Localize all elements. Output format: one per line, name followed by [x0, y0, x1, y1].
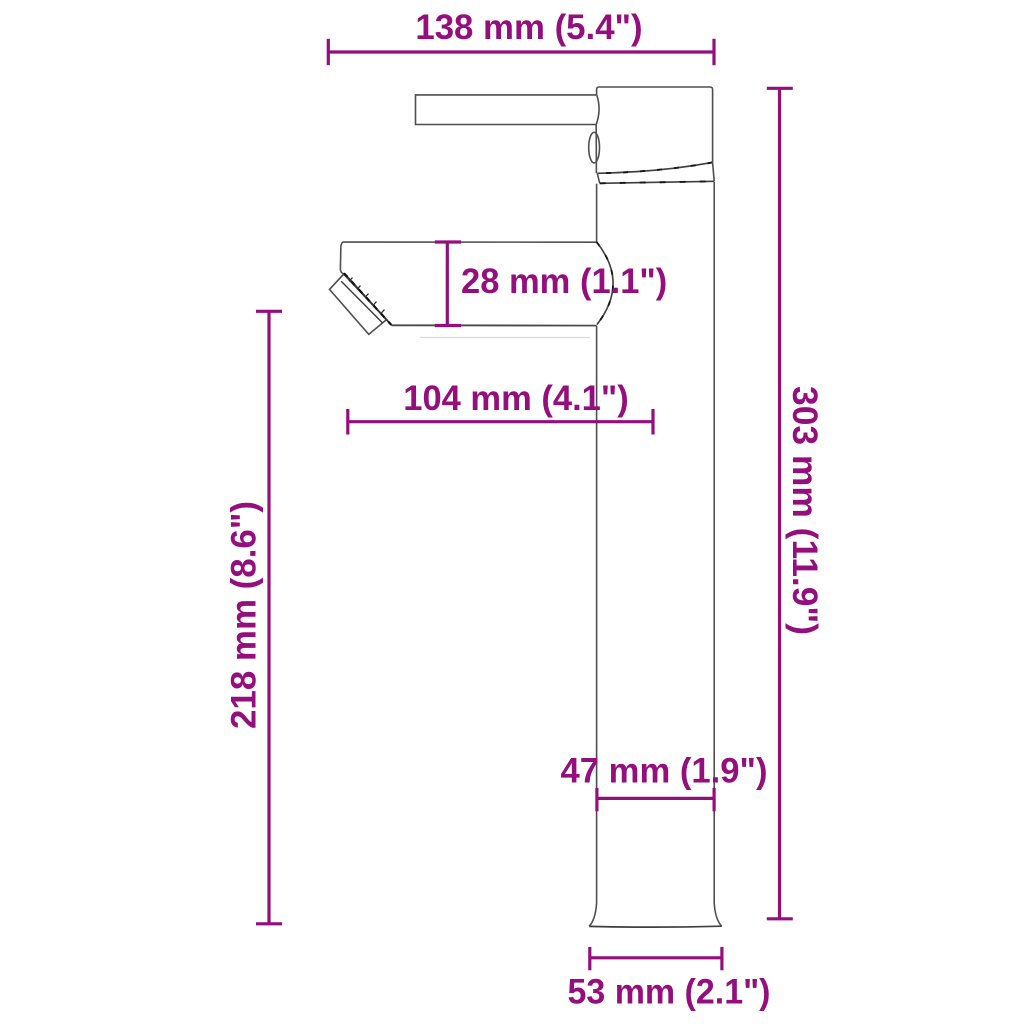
svg-text:138 mm (5.4"): 138 mm (5.4"): [415, 8, 642, 47]
svg-text:303 mm (11.9"): 303 mm (11.9"): [785, 386, 824, 635]
svg-text:28 mm (1.1"): 28 mm (1.1"): [461, 262, 667, 301]
svg-text:53 mm (2.1"): 53 mm (2.1"): [568, 973, 771, 1012]
svg-text:104 mm (4.1"): 104 mm (4.1"): [403, 379, 629, 418]
svg-text:47 mm (1.9"): 47 mm (1.9"): [561, 752, 768, 791]
svg-text:218 mm (8.6"): 218 mm (8.6"): [225, 501, 264, 729]
